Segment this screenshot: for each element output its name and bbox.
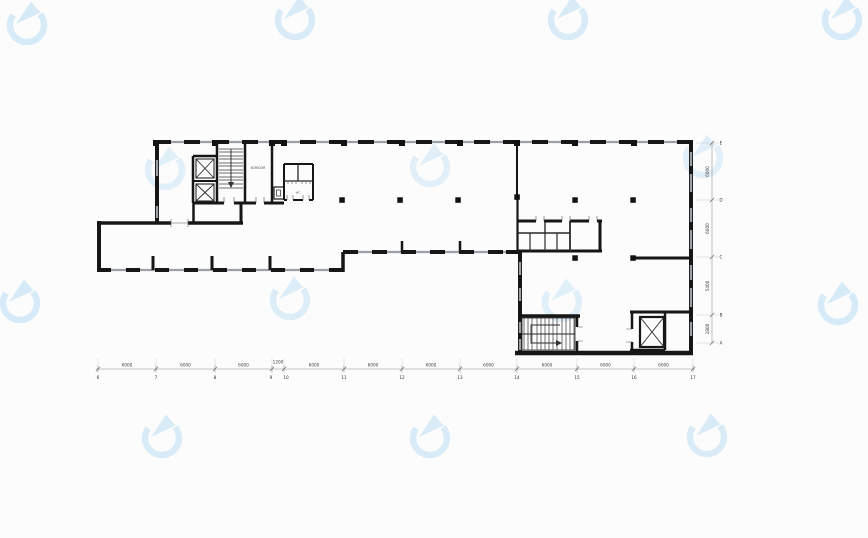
dim-value-right: 2800 — [705, 323, 710, 334]
room-label-wc: WC — [296, 191, 301, 195]
watermark-logo-icon — [273, 277, 307, 318]
grid-number: 8 — [214, 375, 217, 380]
lower-elevator-door-ticks — [626, 329, 632, 342]
watermark-logo-icon — [10, 2, 44, 43]
dim-value-right: 5400 — [705, 280, 710, 291]
lower-stair-arrowhead — [556, 340, 562, 346]
elevator-shaft-walls — [193, 142, 217, 203]
grid-number: 14 — [514, 375, 520, 380]
dim-value: 6000 — [542, 363, 553, 368]
elevator-x-2 — [196, 184, 214, 201]
grid-number: 17 — [690, 375, 696, 380]
room-label-corridor: KORIDOR — [251, 166, 267, 170]
dim-value: 6000 — [426, 363, 437, 368]
grid-number: 9 — [270, 375, 273, 380]
wc-partitions — [284, 164, 313, 181]
lower-stair-door-ticks — [577, 327, 583, 341]
floor-plan-page: 6000 6000 6000 1200 6000 6000 6000 6000 … — [0, 0, 868, 538]
watermark-logo-icon — [690, 414, 724, 455]
stair-arrowhead — [228, 182, 234, 188]
watermark-logo-icon — [145, 415, 179, 456]
dim-value: 6000 — [309, 363, 320, 368]
duct-inner — [277, 190, 281, 196]
grid-letter: E — [720, 141, 723, 146]
dim-value: 6000 — [180, 363, 191, 368]
elevator-x-1 — [196, 159, 214, 178]
watermark-logo-icon — [413, 415, 447, 456]
watermark-logo-icon — [821, 282, 855, 323]
dim-value: 6000 — [368, 363, 379, 368]
dimension-line-right: 6000 6000 5400 2800 E D C B A — [696, 141, 723, 346]
floor-plan-drawing: 6000 6000 6000 1200 6000 6000 6000 6000 … — [0, 0, 868, 538]
grid-number: 6 — [97, 375, 100, 380]
grid-number: 7 — [155, 375, 158, 380]
room-labels: KORIDOR WC — [251, 166, 301, 195]
dimension-line-bottom: 6000 6000 6000 1200 6000 6000 6000 6000 … — [96, 358, 696, 380]
grid-number: 16 — [631, 375, 637, 380]
watermark-layer — [3, 0, 859, 455]
grid-number: 12 — [399, 375, 405, 380]
grid-number: 10 — [283, 375, 289, 380]
services-stall-dividers — [530, 233, 557, 251]
dim-value-right: 6000 — [705, 166, 710, 177]
grid-letter: A — [720, 341, 723, 346]
mid-services-block — [518, 216, 602, 251]
lower-elevator-x — [640, 317, 664, 347]
grid-number: 15 — [574, 375, 580, 380]
watermark-logo-icon — [825, 0, 859, 37]
dim-value-right: 6000 — [705, 223, 710, 234]
watermark-logo-icon — [545, 279, 579, 320]
grid-letter: D — [719, 198, 722, 203]
dim-value: 6000 — [600, 363, 611, 368]
dim-value: 1200 — [273, 360, 284, 365]
dim-value: 6000 — [483, 363, 494, 368]
grid-number: 11 — [341, 375, 347, 380]
dim-value: 6000 — [658, 363, 669, 368]
watermark-logo-icon — [278, 0, 312, 37]
wing-door — [171, 219, 188, 227]
watermark-logo-icon — [3, 280, 37, 321]
dim-value: 6000 — [238, 363, 249, 368]
watermark-logo-icon — [148, 147, 182, 188]
grid-letter: B — [720, 313, 723, 318]
watermark-logo-icon — [551, 0, 585, 37]
grid-number: 13 — [457, 375, 463, 380]
grid-letter: C — [720, 255, 723, 260]
lower-elevator-block — [626, 312, 691, 350]
watermark-logo-icon — [413, 144, 447, 185]
wing-partitions — [153, 256, 270, 270]
dim-value: 6000 — [122, 363, 133, 368]
exterior-walls — [97, 140, 693, 353]
duct-shaft — [274, 187, 284, 199]
services-mid-partition — [518, 221, 570, 233]
lower-stair-block — [518, 316, 583, 353]
